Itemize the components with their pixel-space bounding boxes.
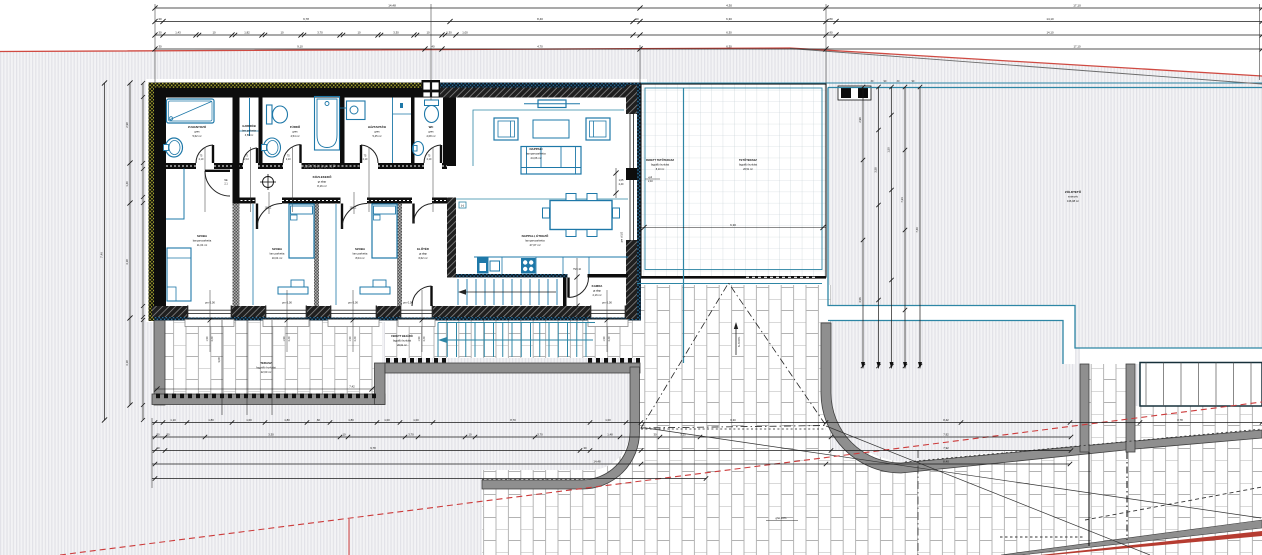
svg-text:136,08 m²: 136,08 m² (1067, 199, 1079, 203)
svg-text:75/2,10: 75/2,10 (573, 268, 582, 271)
svg-text:5,45 m²: 5,45 m² (372, 134, 381, 138)
svg-text:9,78: 9,78 (303, 17, 309, 21)
svg-text:fagyálló burkolat: fagyálló burkolat (393, 340, 412, 343)
svg-text:lampa+parketta: lampa+parketta (525, 239, 545, 243)
svg-text:4,54 m²: 4,54 m² (290, 134, 299, 138)
svg-text:gr.alap: gr.alap (419, 252, 428, 256)
svg-text:7,92: 7,92 (943, 433, 949, 437)
svg-text:2,10: 2,10 (363, 158, 368, 161)
svg-text:,60: ,60 (316, 418, 320, 422)
svg-text:fagyálló burkolat: fagyálló burkolat (739, 164, 758, 167)
svg-text:gres: gres (374, 130, 380, 134)
svg-text:22,60 m²: 22,60 m² (261, 370, 272, 374)
svg-text:2,98: 2,98 (858, 117, 862, 123)
svg-text:5,62 m²: 5,62 m² (192, 134, 201, 138)
svg-text:10: 10 (212, 31, 216, 35)
svg-text:8,42: 8,42 (943, 418, 949, 422)
svg-text:+pd: +pd (648, 176, 653, 179)
svg-text:1,50: 1,50 (418, 336, 421, 341)
svg-text:lam.parketta: lam.parketta (270, 252, 285, 256)
svg-text:SLN 15%: SLN 15% (738, 336, 741, 347)
svg-text:3,18: 3,18 (125, 360, 129, 366)
svg-text:9,78: 9,78 (370, 446, 376, 450)
svg-text:lam.parketta: lam.parketta (242, 130, 256, 133)
svg-text:8,40: 8,40 (943, 460, 949, 464)
svg-text:2,08 m²: 2,08 m² (426, 134, 435, 138)
svg-text:8,70: 8,70 (510, 418, 516, 422)
svg-text:30: 30 (158, 31, 162, 35)
svg-text:30: 30 (635, 17, 639, 21)
svg-text:8,78: 8,78 (1177, 418, 1183, 422)
svg-text:1,48: 1,48 (607, 433, 613, 437)
svg-text:HÁZTARTÁSI: HÁZTARTÁSI (368, 124, 386, 129)
svg-text:3,30: 3,30 (393, 31, 399, 35)
svg-text:14,48: 14,48 (593, 460, 601, 464)
svg-text:ELŐTÉR: ELŐTÉR (417, 246, 430, 251)
svg-text:6,30: 6,30 (726, 17, 732, 21)
svg-text:30: 30 (158, 45, 162, 49)
svg-text:10: 10 (468, 433, 472, 437)
svg-text:6,30: 6,30 (726, 45, 732, 49)
svg-text:fagyálló burkolat: fagyálló burkolat (651, 164, 670, 167)
svg-text:4,70: 4,70 (537, 45, 543, 49)
svg-text:1,80: 1,80 (208, 418, 214, 422)
svg-text:30: 30 (583, 446, 587, 450)
svg-text:8,10 m²: 8,10 m² (656, 168, 665, 171)
svg-text:6,30: 6,30 (730, 223, 736, 227)
svg-text:8,40: 8,40 (537, 17, 543, 21)
svg-text:1,50: 1,50 (206, 336, 209, 341)
svg-text:2,40: 2,40 (423, 336, 426, 341)
svg-text:TERASZ: TERASZ (260, 361, 272, 365)
svg-text:FÜRDŐ: FÜRDŐ (290, 124, 301, 129)
svg-text:2,10: 2,10 (286, 158, 291, 161)
svg-text:47,07 m²: 47,07 m² (529, 243, 540, 247)
svg-text:2,10: 2,10 (427, 158, 432, 161)
svg-text:26,51 m²: 26,51 m² (743, 168, 753, 171)
svg-text:1,00: 1,00 (413, 418, 419, 422)
svg-text:7,34: 7,34 (900, 197, 904, 203)
svg-text:1,00: 1,00 (246, 418, 252, 422)
svg-text:30: 30 (166, 433, 170, 437)
svg-text:1,10: 1,10 (170, 418, 176, 422)
svg-text:1,40: 1,40 (125, 181, 129, 187)
svg-text:18/2,1: 18/2,1 (265, 207, 272, 210)
svg-text:1,50: 1,50 (886, 147, 890, 153)
svg-text:lampa+parketta: lampa+parketta (193, 239, 212, 243)
svg-text:30: 30 (158, 17, 162, 21)
svg-text:1,50: 1,50 (603, 336, 606, 341)
svg-text:KÖZLEKEDŐ: KÖZLEKEDŐ (313, 174, 333, 179)
svg-text:2,40: 2,40 (608, 336, 611, 341)
svg-text:3,70: 3,70 (537, 433, 543, 437)
svg-text:2,40: 2,40 (354, 336, 357, 341)
svg-text:extenzív: extenzív (1068, 195, 1079, 199)
svg-text:30: 30 (653, 433, 657, 437)
svg-text:2,10: 2,10 (244, 158, 249, 161)
svg-text:1,50: 1,50 (283, 336, 286, 341)
svg-text:4,18: 4,18 (125, 259, 129, 265)
svg-text:NAPPALI, ÉTKEZŐ: NAPPALI, ÉTKEZŐ (522, 233, 549, 238)
svg-text:1,43: 1,43 (175, 31, 181, 35)
svg-text:7,40: 7,40 (915, 227, 919, 233)
svg-text:80: 80 (829, 31, 833, 35)
svg-text:1,82: 1,82 (244, 31, 250, 35)
svg-text:10: 10 (280, 31, 284, 35)
svg-text:NAPPALI: NAPPALI (530, 147, 543, 151)
svg-text:1,00: 1,00 (462, 31, 468, 35)
svg-text:80: 80 (829, 17, 833, 21)
svg-text:1,30: 1,30 (446, 31, 452, 35)
svg-text:17,10: 17,10 (1073, 4, 1081, 8)
svg-text:10,04 m²: 10,04 m² (272, 256, 283, 260)
svg-text:3,58: 3,58 (873, 167, 877, 173)
svg-text:ARCHLine.XP: ARCHLine.XP (304, 165, 336, 171)
svg-text:pm 0,00: pm 0,00 (403, 300, 413, 304)
svg-text:1,50: 1,50 (349, 336, 352, 341)
svg-text:SZOBA: SZOBA (197, 234, 208, 238)
svg-text:2,40: 2,40 (211, 336, 214, 341)
svg-text:pm ±0,00: pm ±0,00 (621, 231, 624, 242)
svg-text:6,30: 6,30 (730, 418, 736, 422)
svg-text:7,92: 7,92 (943, 446, 949, 450)
svg-text:lam.parketta: lam.parketta (353, 252, 368, 256)
svg-text:ZUHANYOZÓ: ZUHANYOZÓ (188, 124, 207, 129)
svg-text:gfst.16%: gfst.16% (776, 516, 787, 520)
svg-text:fagyálló burkolat: fagyálló burkolat (256, 366, 276, 370)
svg-text:KAMRA: KAMRA (592, 284, 604, 288)
svg-text:14,48: 14,48 (388, 4, 396, 8)
svg-text:SZOBA: SZOBA (355, 247, 366, 251)
svg-text:2,40: 2,40 (288, 336, 291, 341)
svg-text:1,00: 1,00 (605, 418, 611, 422)
svg-text:ZÖLDTETŐ: ZÖLDTETŐ (1065, 189, 1082, 194)
svg-text:gres: gres (292, 130, 298, 134)
svg-text:6,30: 6,30 (726, 31, 732, 35)
svg-text:14,10: 14,10 (1047, 31, 1054, 35)
svg-text:3,08: 3,08 (217, 357, 221, 363)
svg-text:18/2,1: 18/2,1 (350, 207, 357, 210)
svg-text:1,00: 1,00 (384, 418, 390, 422)
svg-text:4,56: 4,56 (858, 297, 862, 303)
svg-text:1,05: 1,05 (619, 179, 624, 182)
svg-text:1,80: 1,80 (284, 418, 290, 422)
svg-text:17,10: 17,10 (1074, 45, 1081, 49)
svg-text:10: 10 (357, 31, 361, 35)
svg-text:7,42: 7,42 (349, 385, 355, 389)
svg-text:2,98: 2,98 (125, 122, 129, 128)
svg-text:2,10: 2,10 (199, 158, 204, 161)
svg-text:8,04 m²: 8,04 m² (355, 256, 364, 260)
svg-text:1,80: 1,80 (348, 418, 354, 422)
svg-text:10: 10 (342, 433, 346, 437)
svg-text:30: 30 (156, 446, 160, 450)
svg-text:11,04 m²: 11,04 m² (197, 243, 208, 247)
svg-text:gres: gres (428, 130, 434, 134)
svg-text:2,16 m²: 2,16 m² (592, 293, 601, 297)
svg-text:6,62 m²: 6,62 m² (418, 256, 427, 260)
svg-text:lampa+parketta: lampa+parketta (526, 152, 546, 156)
svg-text:24,06 m²: 24,06 m² (530, 156, 541, 160)
svg-text:3,70: 3,70 (317, 31, 323, 35)
svg-text:10: 10 (426, 31, 430, 35)
svg-text:20,61 m²: 20,61 m² (397, 344, 407, 347)
svg-text:3,70: 3,70 (408, 433, 414, 437)
svg-text:8,16 m²: 8,16 m² (317, 184, 327, 188)
svg-text:14,10: 14,10 (1046, 17, 1054, 21)
svg-text:gres: gres (194, 130, 200, 134)
svg-text:9,10: 9,10 (297, 45, 303, 49)
svg-text:2,40: 2,40 (619, 183, 624, 186)
svg-text:40: 40 (431, 45, 435, 49)
svg-text:4,30: 4,30 (726, 4, 732, 8)
svg-text:3,30: 3,30 (268, 433, 274, 437)
svg-text:2,40: 2,40 (648, 180, 653, 183)
svg-text:gr.alap: gr.alap (318, 180, 327, 184)
svg-text:gr.alap: gr.alap (593, 289, 602, 293)
svg-text:30: 30 (156, 433, 160, 437)
svg-text:7,46: 7,46 (100, 252, 104, 258)
svg-text:3,10: 3,10 (680, 433, 686, 437)
svg-text:3,58 m²: 3,58 m² (245, 134, 254, 137)
svg-text:SZOBA: SZOBA (272, 247, 283, 251)
